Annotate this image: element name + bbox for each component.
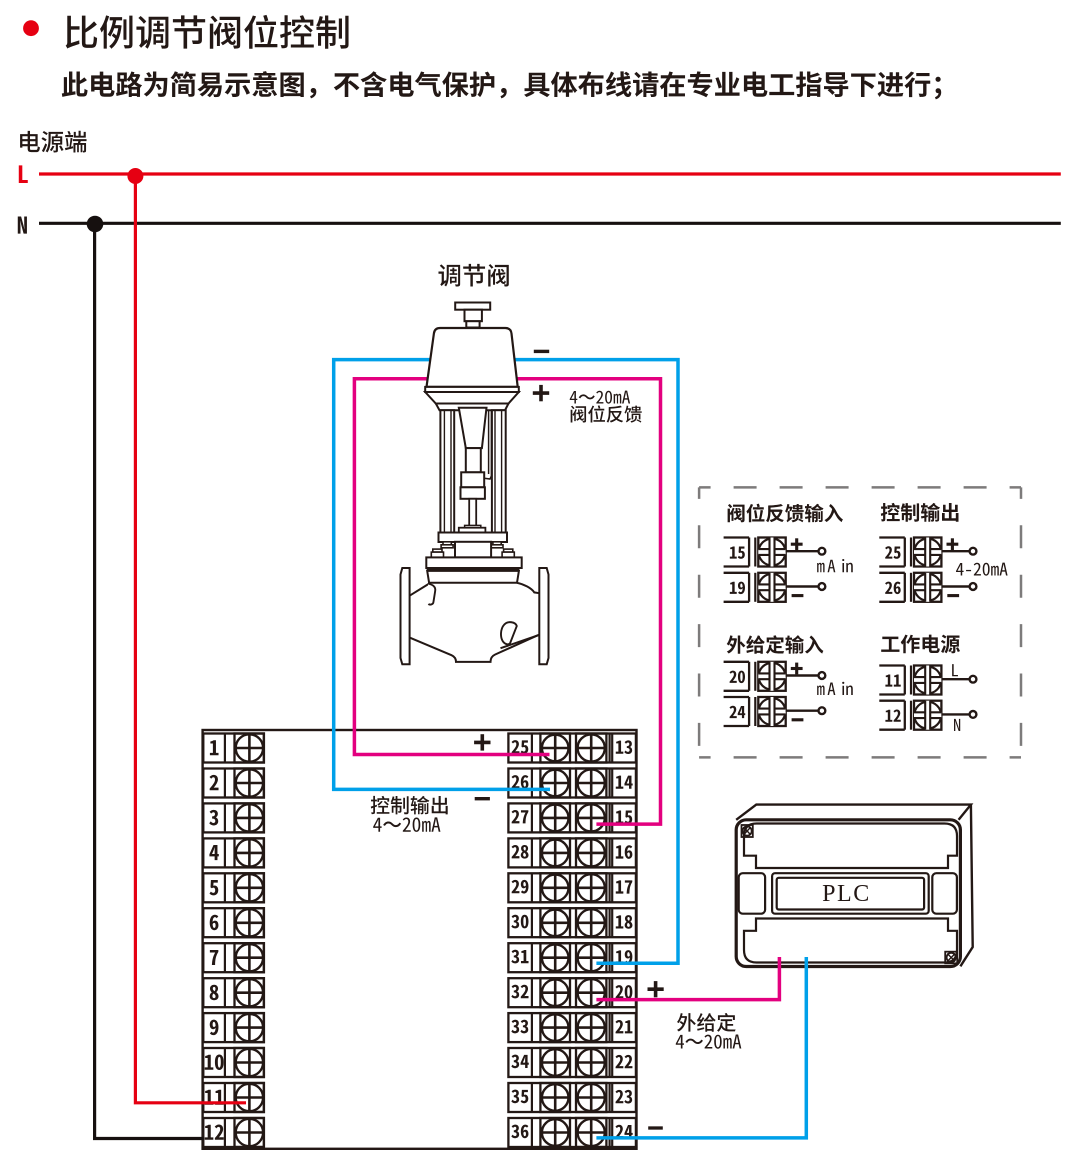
svg-text:PLC: PLC	[822, 881, 871, 907]
